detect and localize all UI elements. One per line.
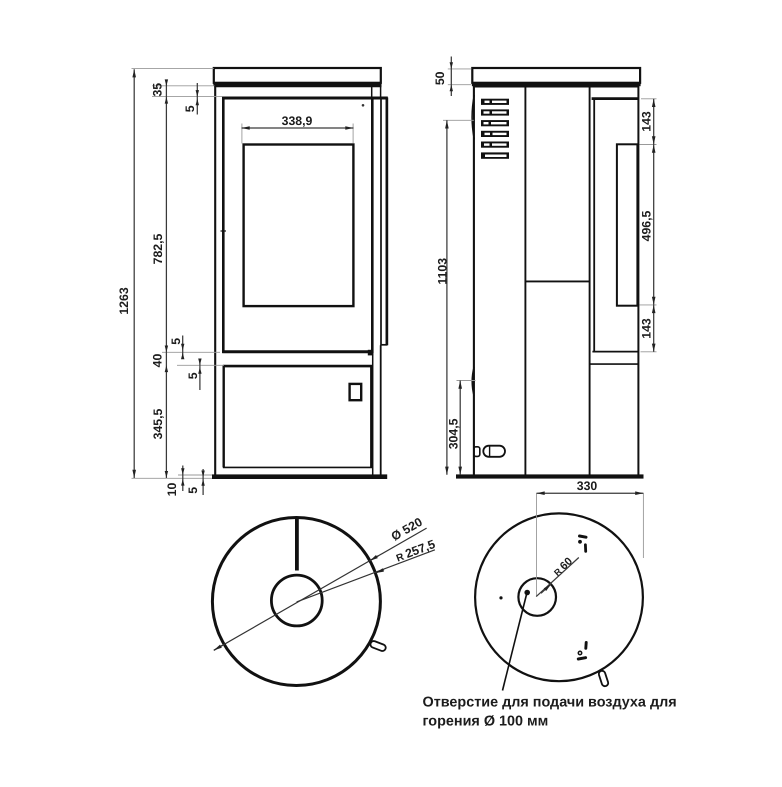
svg-text:345,5: 345,5 (151, 408, 165, 439)
svg-text:50: 50 (433, 71, 447, 85)
svg-text:5: 5 (169, 338, 183, 345)
svg-text:40: 40 (150, 354, 164, 368)
svg-text:1263: 1263 (117, 287, 131, 315)
svg-text:горения Ø 100 мм: горения Ø 100 мм (423, 714, 549, 730)
svg-text:Отверстие для подачи воздуха д: Отверстие для подачи воздуха для (423, 695, 677, 711)
svg-text:330: 330 (577, 479, 598, 493)
svg-text:5: 5 (186, 487, 200, 494)
svg-text:304,5: 304,5 (447, 418, 461, 449)
svg-text:1103: 1103 (436, 258, 450, 285)
svg-text:5: 5 (183, 105, 197, 112)
svg-text:35: 35 (151, 83, 165, 97)
svg-text:5: 5 (186, 372, 200, 379)
svg-text:782,5: 782,5 (151, 233, 165, 264)
svg-text:338,9: 338,9 (282, 114, 313, 128)
svg-text:143: 143 (639, 111, 653, 132)
svg-text:496,5: 496,5 (639, 210, 653, 241)
svg-text:10: 10 (165, 483, 179, 497)
svg-text:143: 143 (639, 318, 653, 339)
